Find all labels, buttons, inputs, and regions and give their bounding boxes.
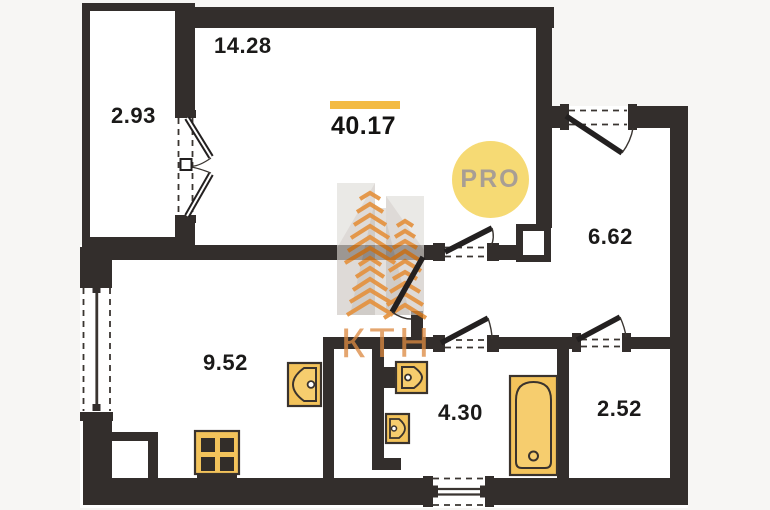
pro-badge: PRO: [452, 141, 529, 218]
area-label-balcony: 2.93: [111, 103, 156, 129]
pro-badge-label: PRO: [460, 165, 520, 194]
total-area-underline: [330, 101, 400, 109]
floorplan-canvas: КТН: [0, 0, 770, 510]
area-label-living: 14.28: [214, 33, 272, 59]
area-label-total: 40.17: [331, 112, 396, 141]
area-label-hall: 6.62: [588, 224, 633, 250]
area-label-storage: 2.52: [597, 396, 642, 422]
watermark-text: КТН: [341, 319, 433, 366]
floor-plan-svg: КТН: [0, 0, 770, 510]
kitchen-sink: [288, 363, 321, 406]
stove: [195, 431, 239, 480]
bathtub: [510, 376, 557, 475]
toilet: [386, 414, 409, 443]
area-label-kitchen: 9.52: [203, 350, 248, 376]
pillar-core: [523, 231, 544, 255]
area-label-bath: 4.30: [438, 400, 483, 426]
watermark: КТН: [337, 183, 433, 366]
